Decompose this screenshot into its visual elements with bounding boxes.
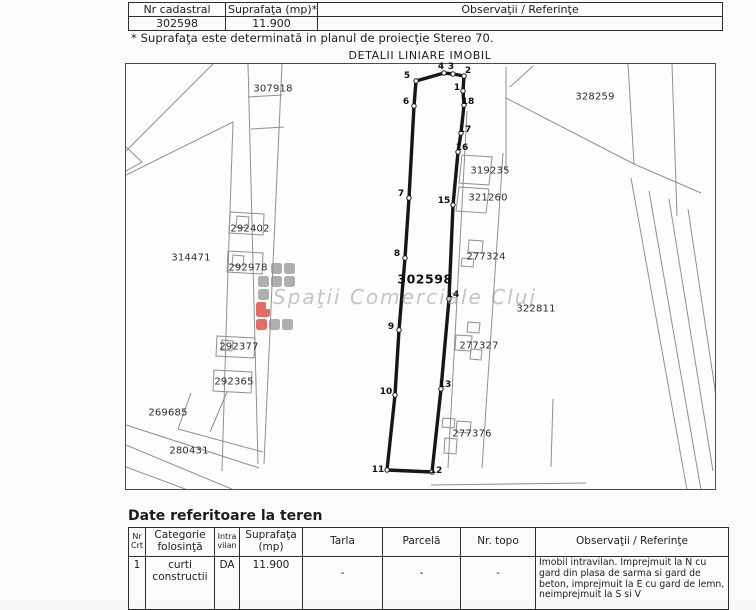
value-suprafata: 11.900 <box>226 17 318 31</box>
land-section-heading: Date referitoare la teren <box>128 508 323 524</box>
parcel-vertex-node <box>451 203 455 207</box>
parcel-vertex-number: 14 <box>447 290 460 300</box>
land-data-table: Nr Crt Categorie folosinţă Intra vilan S… <box>128 527 729 610</box>
parcel-vertex-number: 18 <box>462 97 475 107</box>
neighbor-parcel-label: 314471 <box>171 253 210 264</box>
neighbor-parcel-label: 319235 <box>470 166 509 177</box>
neighbor-parcel-label: 277324 <box>466 252 505 263</box>
neighbor-parcel-label: 280431 <box>169 446 208 457</box>
table-row: 302598 11.900 <box>129 17 723 31</box>
header-suprafata-mp: Suprafaţa (mp) <box>240 528 303 557</box>
cadastral-summary-table: Nr cadastral Suprafaţa (mp)* Observaţii … <box>128 2 723 31</box>
cell-suprafata: 11.900 <box>240 557 303 610</box>
cell-tarla: - <box>303 557 383 610</box>
neighbor-parcel-label: 277376 <box>452 429 491 440</box>
neighbor-parcel-label: 292377 <box>219 342 258 353</box>
parcel-vertex-node <box>397 328 401 332</box>
cell-categorie: curti constructii <box>146 557 215 610</box>
header-observatii: Observaţii / Referinţe <box>318 3 723 17</box>
subject-parcel-number: 302598 <box>397 272 452 287</box>
value-nr-cadastral: 302598 <box>129 17 226 31</box>
cell-nr-topo: - <box>461 557 536 610</box>
parcel-vertex-number: 10 <box>380 387 393 397</box>
parcel-vertex-number: 15 <box>438 196 451 206</box>
parcel-vertex-node <box>414 79 418 83</box>
parcel-vertex-number: 3 <box>448 62 454 72</box>
neighbor-parcel-label: 277327 <box>459 341 498 352</box>
value-observatii <box>318 17 723 31</box>
table-header-row: Nr cadastral Suprafaţa (mp)* Observaţii … <box>129 3 723 17</box>
map-title: DETALII LINIARE IMOBIL <box>125 49 715 62</box>
cadastral-map: Spaţii Comerciale Cluj 302598 5432118171… <box>125 63 716 490</box>
parcel-vertex-node <box>393 393 397 397</box>
neighbor-parcel-label: 292402 <box>230 224 269 235</box>
neighbor-parcel-label: 292365 <box>214 377 253 388</box>
parcel-vertex-node <box>461 89 465 93</box>
parcel-vertex-number: 4 <box>438 62 444 72</box>
parcel-vertex-number: 9 <box>388 322 394 332</box>
parcel-vertex-number: 16 <box>456 143 469 153</box>
neighbor-parcel-label: 269685 <box>148 408 187 419</box>
header-observatii-referinte: Observaţii / Referinţe <box>536 528 729 557</box>
header-nr-topo: Nr. topo <box>461 528 536 557</box>
header-intravilan: Intra vilan <box>215 528 240 557</box>
scanned-cadastral-document: Nr cadastral Suprafaţa (mp)* Observaţii … <box>0 0 756 600</box>
stereo70-footnote: * Suprafaţa este determinată in planul d… <box>131 31 494 45</box>
header-suprafata: Suprafaţa (mp)* <box>226 3 318 17</box>
parcel-vertex-node <box>451 72 455 76</box>
cell-intravilan: DA <box>215 557 240 610</box>
header-parcela: Parcelă <box>383 528 461 557</box>
land-table-row: 1 curti constructii DA 11.900 - - - Imob… <box>129 557 729 610</box>
header-nr-crt: Nr Crt <box>129 528 146 557</box>
neighbor-parcel-label: 307918 <box>253 84 292 95</box>
watermark-text: Spaţii Comerciale Cluj <box>273 285 537 309</box>
neighbor-parcel-label: 322811 <box>516 304 555 315</box>
parcel-vertex-number: 13 <box>439 380 452 390</box>
cell-nr-crt: 1 <box>129 557 146 610</box>
land-table-header-row: Nr Crt Categorie folosinţă Intra vilan S… <box>129 528 729 557</box>
neighbor-parcel-label: 321260 <box>468 193 507 204</box>
parcel-vertex-number: 17 <box>459 125 472 135</box>
cell-observatii: Imobil intravilan. Imprejmuit la N cu ga… <box>536 557 729 610</box>
parcel-vertex-number: 12 <box>430 466 443 476</box>
parcel-vertex-number: 11 <box>372 465 385 475</box>
parcel-vertex-number: 7 <box>398 189 404 199</box>
parcel-vertex-number: 2 <box>465 66 471 76</box>
neighbor-parcel-label: 328259 <box>575 92 614 103</box>
parcel-vertex-node <box>412 104 416 108</box>
header-categorie-folosinta: Categorie folosinţă <box>146 528 215 557</box>
cell-parcela: - <box>383 557 461 610</box>
parcel-vertex-number: 6 <box>403 97 409 107</box>
parcel-vertex-node <box>385 468 389 472</box>
header-nr-cadastral: Nr cadastral <box>129 3 226 17</box>
neighbor-parcel-label: 292978 <box>228 263 267 274</box>
parcel-vertex-node <box>407 196 411 200</box>
parcel-vertex-number: 5 <box>404 71 410 81</box>
parcel-vertex-number: 8 <box>394 249 400 259</box>
parcel-vertex-number: 1 <box>454 83 460 93</box>
parcel-vertex-node <box>403 256 407 260</box>
header-tarla: Tarla <box>303 528 383 557</box>
